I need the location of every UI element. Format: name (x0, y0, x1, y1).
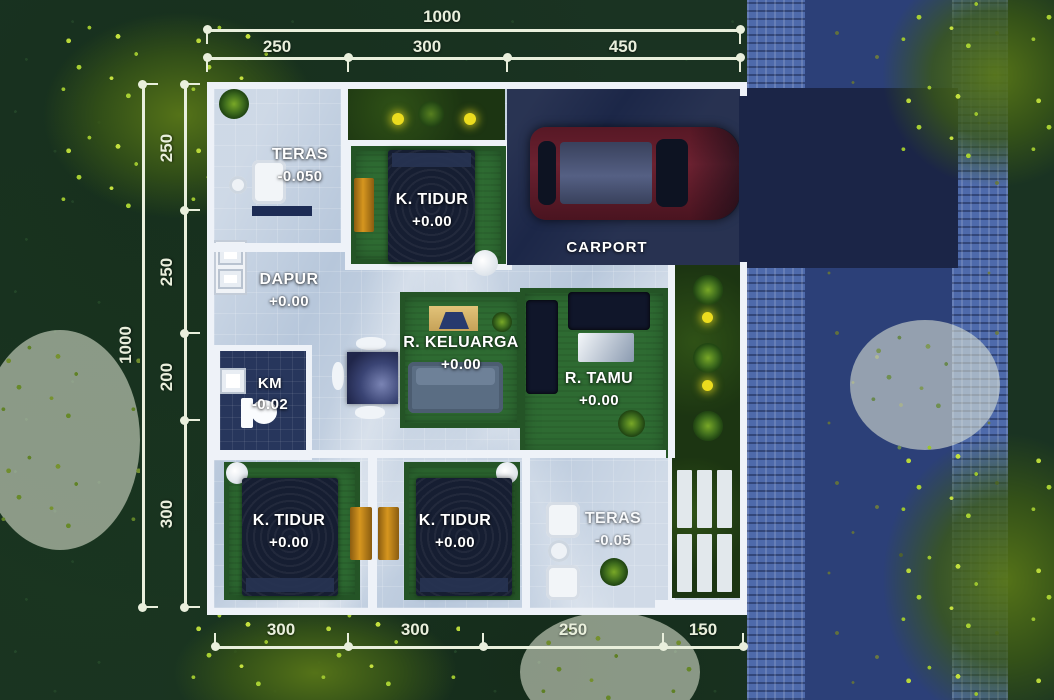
room-name: KM (258, 375, 282, 392)
side-garden (675, 265, 740, 458)
room-name: K. TIDUR (419, 512, 492, 529)
dimension-tick (344, 642, 353, 651)
plant (693, 275, 723, 305)
carport-opening (739, 96, 758, 262)
room-label-keluarga: R. KELUARGA +0.00 (396, 332, 526, 375)
dimension-tick (479, 642, 488, 651)
car (530, 127, 740, 220)
room-label-carport: CARPORT (547, 237, 667, 258)
dining-chair (332, 362, 344, 390)
room-level: -0.02 (224, 394, 316, 415)
room-level: +0.00 (395, 532, 515, 553)
room-level: +0.00 (539, 390, 659, 411)
dimension-tick (203, 53, 212, 62)
porch-chair (546, 565, 580, 600)
room-label-bedroom-top: K. TIDUR +0.00 (372, 189, 492, 232)
dim-top-1: 250 (237, 37, 317, 57)
room-name: R. TAMU (565, 370, 633, 387)
dimension-tick (736, 53, 745, 62)
dimension-line-left-segments (184, 84, 187, 607)
room-level: +0.00 (229, 291, 349, 312)
dim-top-total: 1000 (392, 7, 492, 27)
dim-top-2: 300 (387, 37, 467, 57)
wall (522, 458, 530, 608)
floor-plan-render: TERAS -0.050 K. TIDUR +0.00 CARPORT DAPU… (0, 0, 1054, 700)
dim-left-2: 250 (157, 242, 177, 302)
garden-light (392, 113, 404, 125)
paving-slab (717, 534, 732, 592)
room-name: TERAS (585, 510, 641, 527)
plant (693, 411, 723, 441)
paving-slab (677, 534, 692, 592)
garden-light (702, 380, 713, 391)
tv (439, 312, 469, 329)
plant (492, 312, 512, 332)
dimension-line-left-total (142, 84, 145, 607)
bed-pillows (392, 153, 471, 167)
dimension-tick (211, 642, 220, 651)
dimension-tick (180, 80, 189, 89)
room-name: K. TIDUR (396, 191, 469, 208)
wall (214, 243, 341, 252)
dimension-tick (739, 642, 748, 651)
bed-pillows (246, 578, 334, 592)
plant (693, 343, 723, 373)
bed-pillows (420, 578, 508, 592)
paving-slab (677, 470, 692, 528)
dimension-tick (180, 416, 189, 425)
porch-step (252, 206, 312, 216)
plant (600, 558, 628, 586)
room-name: CARPORT (566, 239, 647, 256)
room-level: -0.05 (553, 530, 673, 551)
dimension-tick (344, 53, 353, 62)
dimension-tick (180, 603, 189, 612)
dim-bottom-3: 250 (533, 620, 613, 640)
dining-chair (356, 337, 386, 350)
room-label-dapur: DAPUR +0.00 (229, 269, 349, 312)
dim-left-4: 300 (157, 484, 177, 544)
tree (880, 0, 1054, 190)
dimension-tick (739, 31, 741, 44)
dim-bottom-2: 300 (375, 620, 455, 640)
paving-slab (717, 470, 732, 528)
dim-bottom-4: 150 (663, 620, 743, 640)
wall (214, 450, 666, 458)
plant (219, 89, 249, 119)
garden-light (464, 113, 476, 125)
dimension-line-top-segments (207, 57, 740, 60)
room-name: DAPUR (260, 271, 319, 288)
front-garden (348, 89, 505, 140)
dimension-tick (503, 53, 512, 62)
room-label-bedroom-bm: K. TIDUR +0.00 (395, 510, 515, 553)
dim-left-3: 200 (157, 347, 177, 407)
coffee-table (578, 333, 634, 362)
plant (418, 101, 444, 127)
room-level: +0.00 (372, 211, 492, 232)
room-label-teras-top: TERAS -0.050 (240, 144, 360, 187)
dimension-tick (180, 329, 189, 338)
dimension-tick (138, 603, 147, 612)
wardrobe (350, 507, 372, 560)
dimension-line-top-total (207, 29, 740, 32)
room-label-tamu: R. TAMU +0.00 (539, 368, 659, 411)
room-name: R. KELUARGA (403, 334, 519, 351)
tv-table (429, 306, 478, 331)
plant (618, 410, 645, 437)
room-level: +0.00 (229, 532, 349, 553)
house-plan: TERAS -0.050 K. TIDUR +0.00 CARPORT DAPU… (207, 82, 747, 615)
room-label-teras-bottom: TERAS -0.05 (553, 508, 673, 551)
dimension-tick (659, 642, 668, 651)
car-roof (560, 142, 652, 204)
sofa (568, 292, 650, 330)
dining-chair (355, 406, 385, 419)
room-name: K. TIDUR (253, 512, 326, 529)
garden-light (702, 312, 713, 323)
paving-area (672, 458, 740, 598)
room-name: TERAS (272, 146, 328, 163)
dining-table (347, 352, 398, 404)
room-label-km: KM -0.02 (224, 373, 316, 415)
room-label-bedroom-bl: K. TIDUR +0.00 (229, 510, 349, 553)
dimension-tick (180, 206, 189, 215)
dim-left-total: 1000 (116, 315, 136, 375)
floor-lamp (472, 250, 498, 276)
paving-slab (697, 470, 712, 528)
wall (655, 600, 740, 611)
dimension-tick (206, 31, 208, 44)
room-level: +0.00 (396, 354, 526, 375)
dim-left-1: 250 (157, 118, 177, 178)
dim-top-3: 450 (583, 37, 663, 57)
paving-slab (697, 534, 712, 592)
car-rear-window (538, 141, 556, 205)
room-level: -0.050 (240, 166, 360, 187)
car-hood (690, 127, 740, 220)
dimension-tick (138, 80, 147, 89)
car-windshield (656, 139, 688, 207)
dim-bottom-1: 300 (241, 620, 321, 640)
tree (880, 430, 1054, 700)
